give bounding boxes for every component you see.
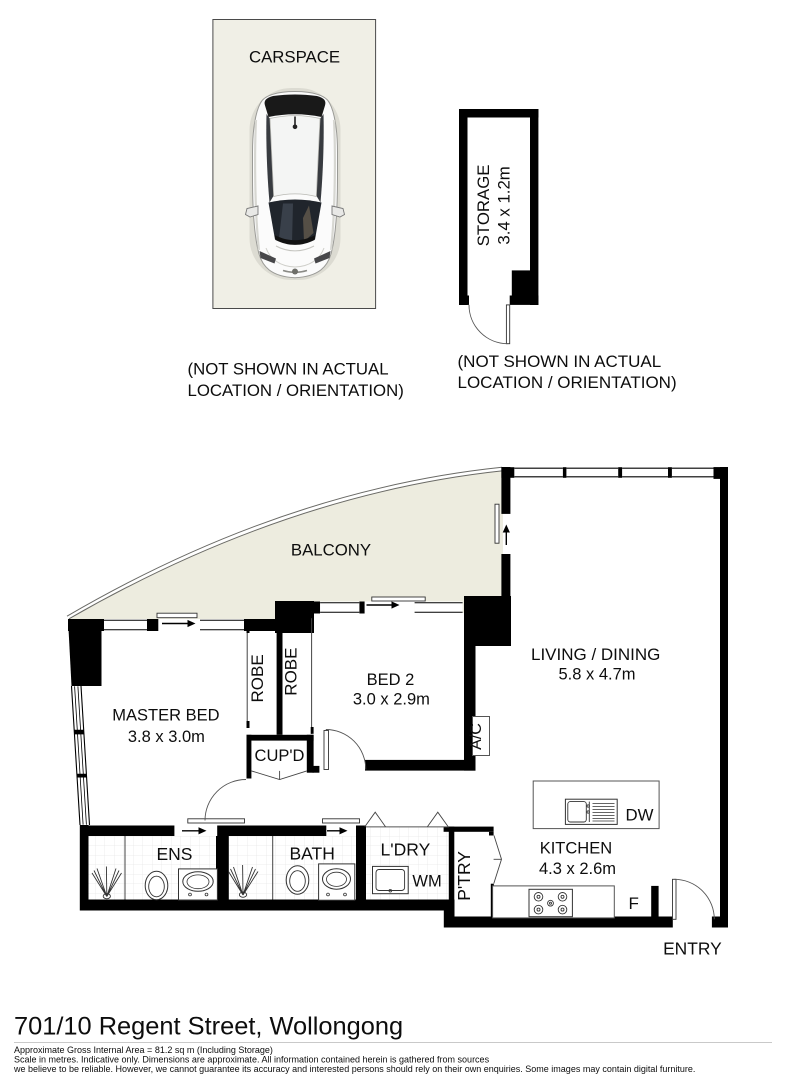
svg-text:ROBE: ROBE (248, 654, 267, 702)
svg-text:3.8 x 3.0m: 3.8 x 3.0m (128, 728, 205, 746)
svg-text:3.0 x 2.9m: 3.0 x 2.9m (353, 691, 430, 709)
svg-text:LOCATION / ORIENTATION): LOCATION / ORIENTATION) (458, 373, 677, 392)
svg-text:ENTRY: ENTRY (663, 939, 722, 959)
svg-text:we believe to be reliable. How: we believe to be reliable. However, we c… (13, 1064, 695, 1074)
svg-text:WM: WM (412, 873, 441, 891)
svg-text:4.3 x 2.6m: 4.3 x 2.6m (539, 860, 616, 878)
svg-text:(NOT SHOWN IN ACTUAL: (NOT SHOWN IN ACTUAL (458, 352, 662, 371)
svg-text:Approximate Gross Internal Are: Approximate Gross Internal Area = 81.2 s… (14, 1045, 273, 1055)
svg-text:STORAGE: STORAGE (474, 165, 493, 247)
svg-text:MASTER BED: MASTER BED (112, 707, 219, 725)
svg-text:5.8 x 4.7m: 5.8 x 4.7m (558, 666, 635, 684)
svg-text:L'DRY: L'DRY (381, 840, 431, 860)
svg-text:ENS: ENS (157, 844, 193, 864)
svg-text:701/10 Regent Street, Wollongo: 701/10 Regent Street, Wollongong (14, 1013, 403, 1041)
svg-text:CUP'D: CUP'D (255, 747, 305, 765)
svg-text:A/C: A/C (468, 723, 485, 750)
svg-text:BED 2: BED 2 (367, 671, 415, 689)
svg-text:LIVING / DINING: LIVING / DINING (531, 645, 660, 664)
svg-text:ROBE: ROBE (282, 648, 301, 696)
svg-text:BALCONY: BALCONY (291, 541, 371, 560)
svg-text:P'TRY: P'TRY (454, 851, 474, 901)
svg-text:F: F (629, 894, 639, 913)
svg-text:CARSPACE: CARSPACE (249, 48, 340, 67)
svg-text:(NOT SHOWN IN ACTUAL: (NOT SHOWN IN ACTUAL (188, 360, 389, 379)
svg-text:Scale in metres. Indicative on: Scale in metres. Indicative only. Dimens… (14, 1054, 490, 1064)
svg-text:DW: DW (626, 806, 654, 825)
svg-text:LOCATION / ORIENTATION): LOCATION / ORIENTATION) (188, 381, 404, 400)
svg-text:3.4 x 1.2m: 3.4 x 1.2m (495, 166, 514, 244)
svg-text:KITCHEN: KITCHEN (540, 839, 612, 857)
svg-text:BATH: BATH (290, 844, 335, 864)
